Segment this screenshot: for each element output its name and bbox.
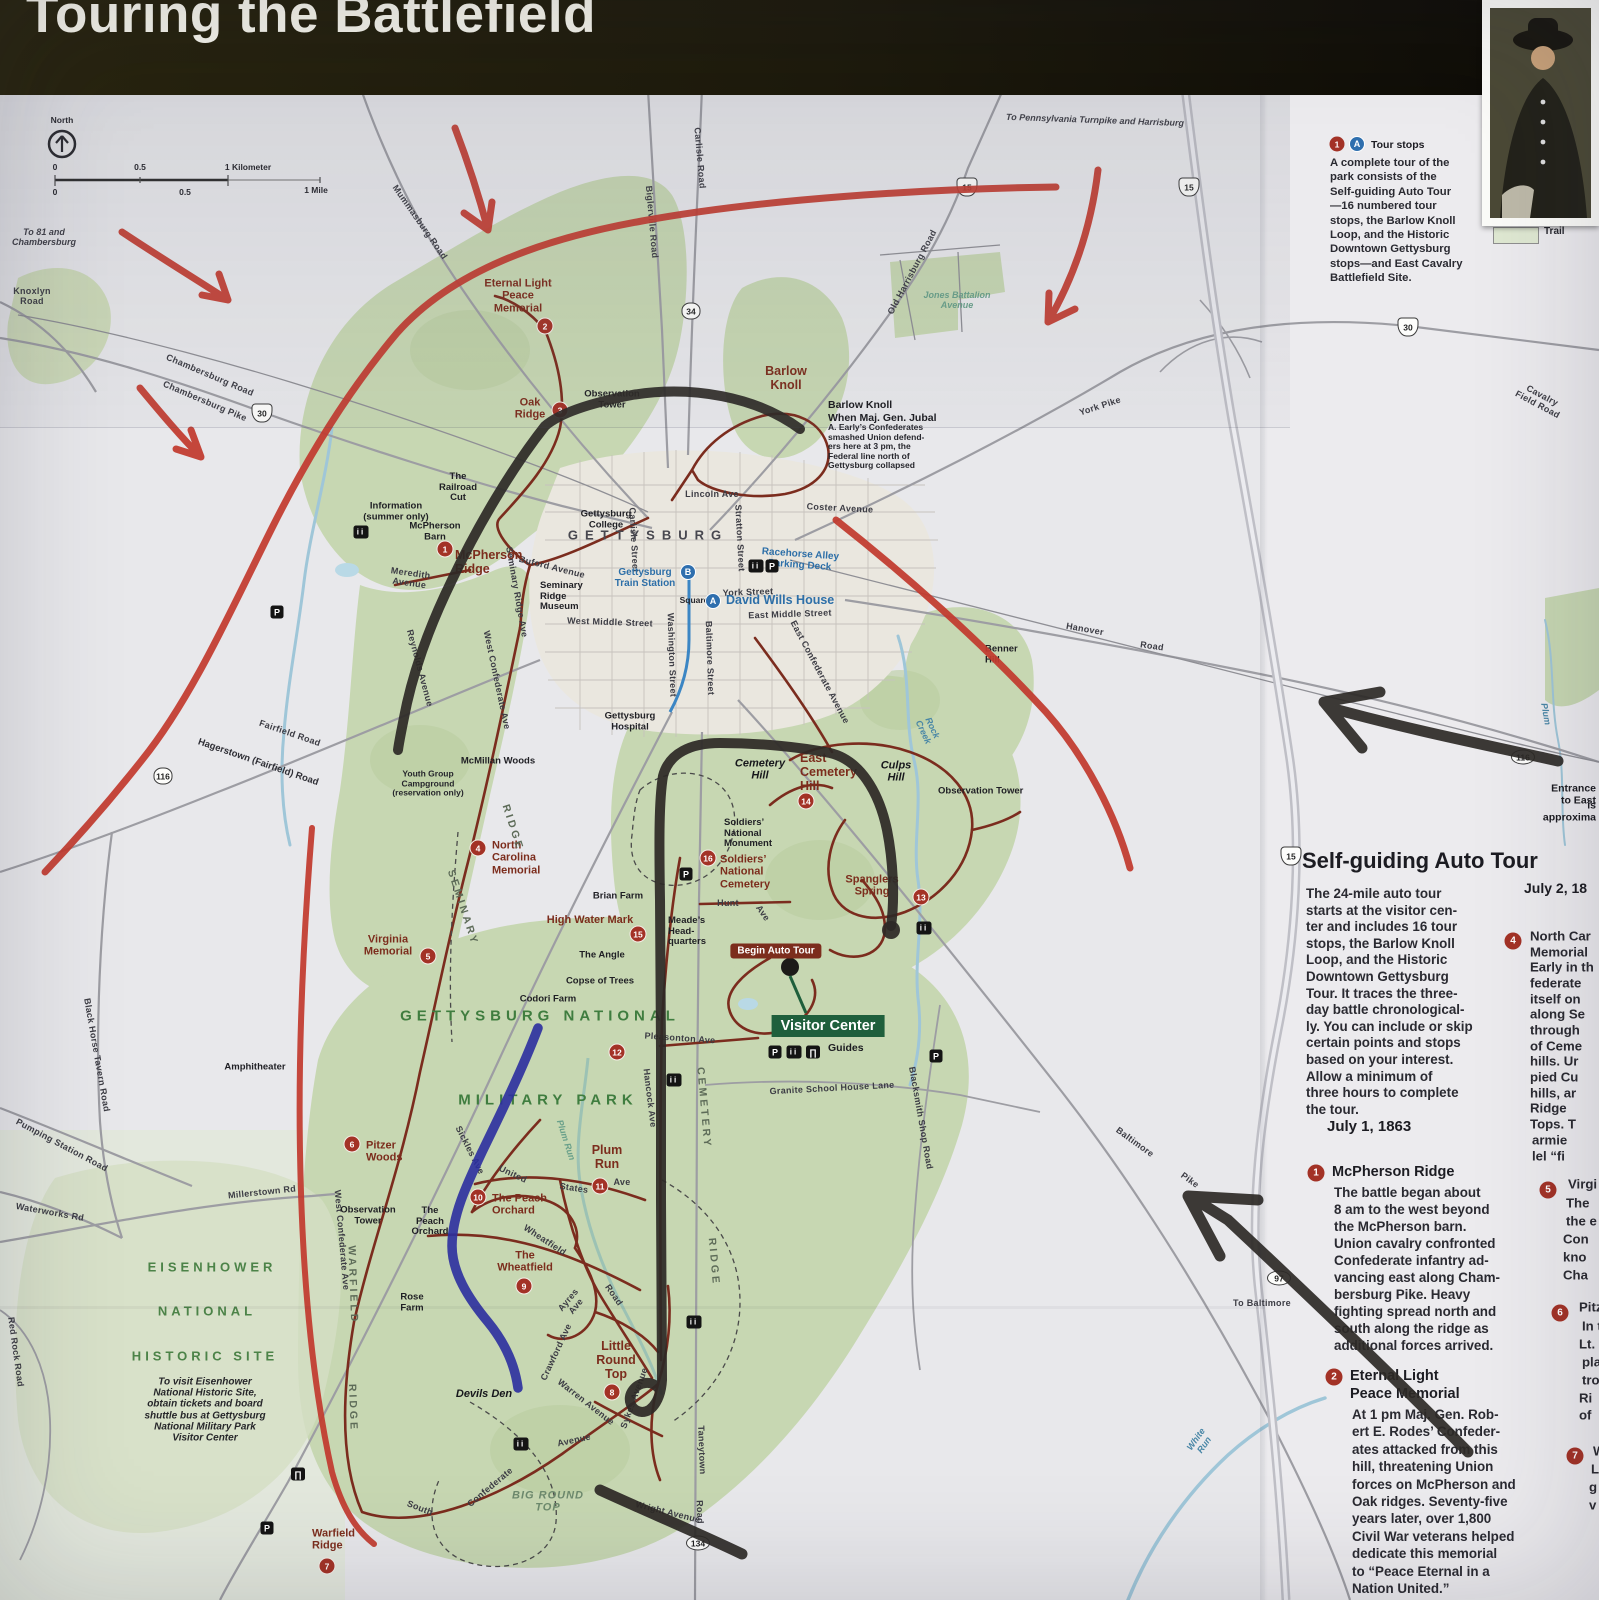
photographed-brochure-map: Touring the Battlefield 1 A Tour stops A… — [0, 0, 1599, 1600]
photo-vignette — [0, 0, 1599, 1600]
